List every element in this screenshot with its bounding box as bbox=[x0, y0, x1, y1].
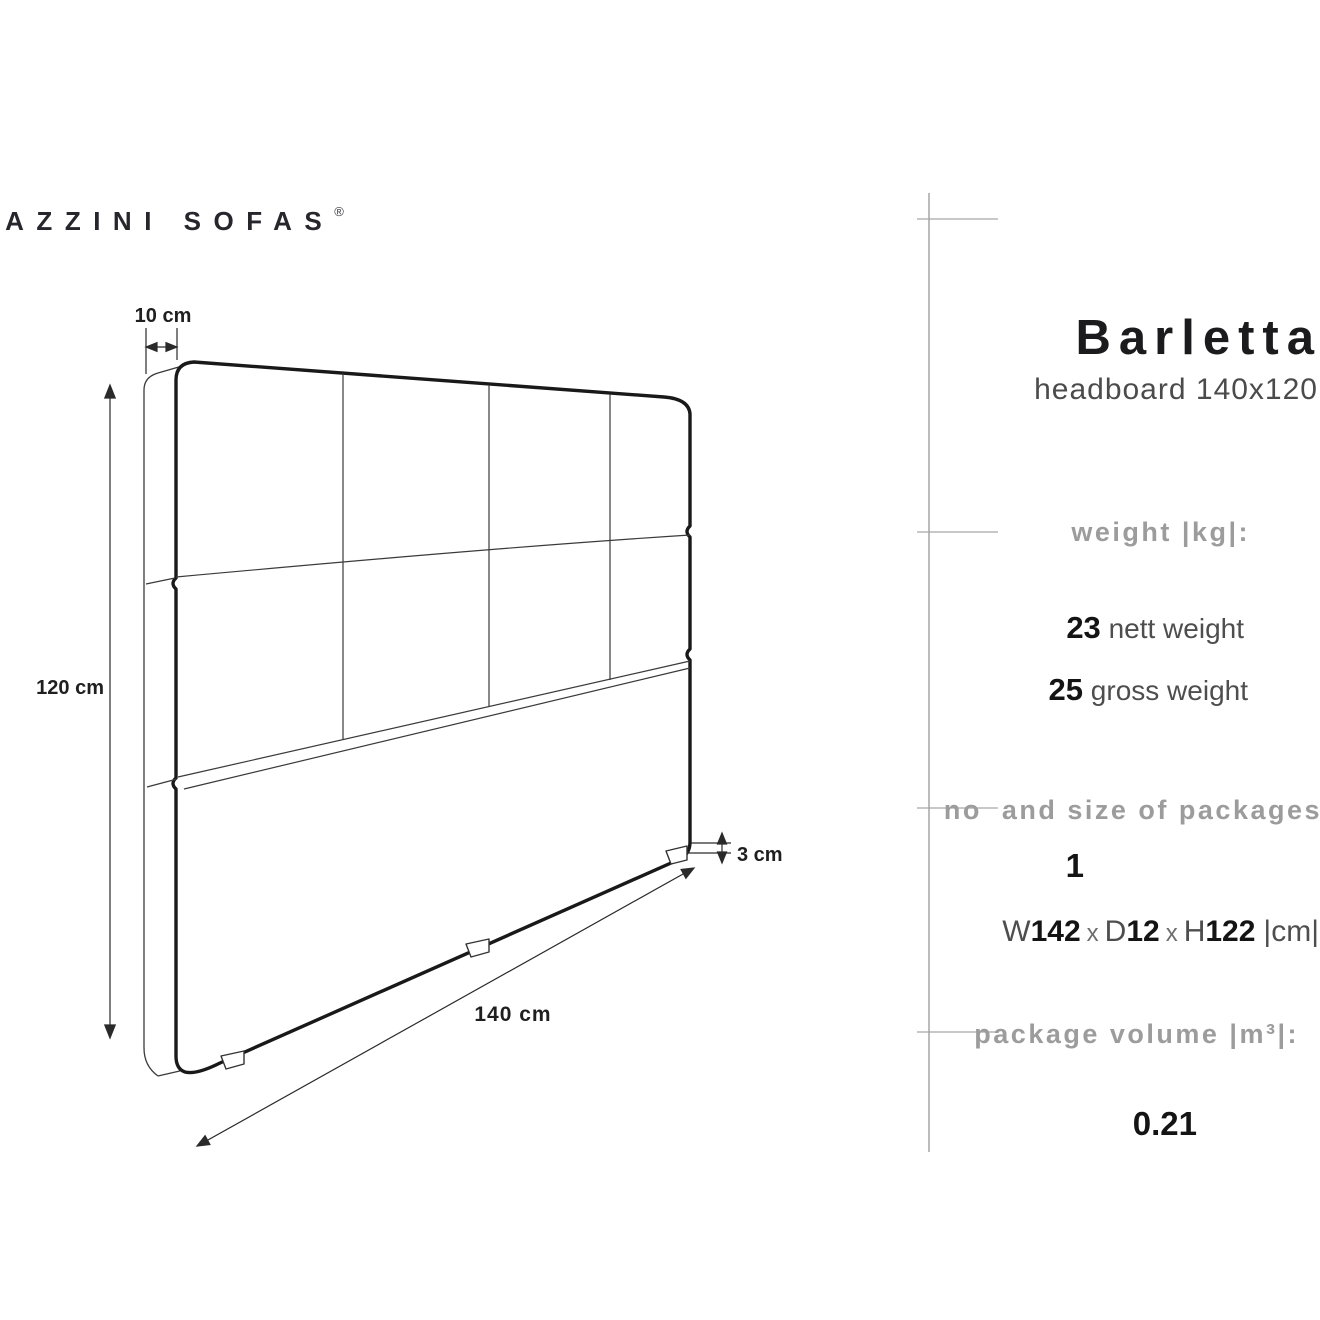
headboard-technical-drawing: 10 cm 120 cm 3 cm 140 cm bbox=[0, 0, 1320, 1320]
volume-value: 0.21 bbox=[1133, 1105, 1197, 1143]
nett-weight-value: 23 bbox=[1066, 610, 1100, 645]
volume-section-heading: package volume |m³|: bbox=[974, 1019, 1299, 1050]
gross-weight-value: 25 bbox=[1049, 672, 1083, 707]
headboard-outline bbox=[173, 362, 690, 1073]
dim-label-height: 120 cm bbox=[36, 677, 104, 699]
arrowhead-bottom bbox=[718, 852, 727, 863]
arrowhead-left bbox=[197, 1136, 210, 1146]
nett-weight-label: nett weight bbox=[1101, 613, 1244, 644]
packages-section-heading: no and size of packages bbox=[944, 795, 1320, 826]
registered-trademark-icon: ® bbox=[334, 204, 344, 219]
side-panel-back-edge bbox=[144, 373, 158, 1076]
side-seam-mark-1 bbox=[146, 578, 175, 584]
dimension-height-120cm bbox=[105, 385, 115, 1038]
times-sign: x bbox=[1081, 920, 1105, 947]
width-letter: W bbox=[1002, 915, 1030, 948]
weight-section-heading: weight |kg|: bbox=[1071, 517, 1250, 548]
arrowhead-left bbox=[146, 343, 157, 352]
brand-logo: MAZZINI SOFAS® bbox=[0, 204, 344, 237]
arrowhead-right bbox=[681, 868, 694, 878]
arrowhead-bottom bbox=[105, 1025, 115, 1038]
brand-logo-text: MAZZINI SOFAS bbox=[0, 206, 334, 236]
dimension-depth-10cm bbox=[146, 328, 177, 374]
dim-label-foot: 3 cm bbox=[737, 844, 783, 866]
height-value: 122 bbox=[1205, 915, 1255, 948]
gross-weight-line: 25 gross weight bbox=[1049, 672, 1248, 708]
height-letter: H bbox=[1184, 915, 1206, 948]
times-sign: x bbox=[1160, 920, 1184, 947]
product-title: Barletta bbox=[1076, 310, 1320, 366]
dim-label-width: 140 cm bbox=[474, 1003, 551, 1026]
width-value: 142 bbox=[1031, 915, 1081, 948]
panel-separator bbox=[917, 193, 998, 1152]
arrowhead-top bbox=[718, 833, 727, 844]
arrowhead-right bbox=[166, 343, 177, 352]
package-dimensions-line: W142xD12xH122|cm| bbox=[1002, 915, 1319, 949]
dim-label-depth: 10 cm bbox=[135, 305, 192, 327]
gross-weight-label: gross weight bbox=[1083, 675, 1248, 706]
product-subtitle: headboard 140x120 bbox=[1034, 373, 1318, 407]
arrowhead-top bbox=[105, 385, 115, 398]
depth-letter: D bbox=[1105, 915, 1127, 948]
depth-value: 12 bbox=[1126, 915, 1159, 948]
package-count: 1 bbox=[1066, 847, 1084, 885]
cm-unit: |cm| bbox=[1255, 915, 1319, 948]
nett-weight-line: 23 nett weight bbox=[1066, 610, 1244, 646]
dimension-foot-3cm bbox=[689, 833, 731, 863]
